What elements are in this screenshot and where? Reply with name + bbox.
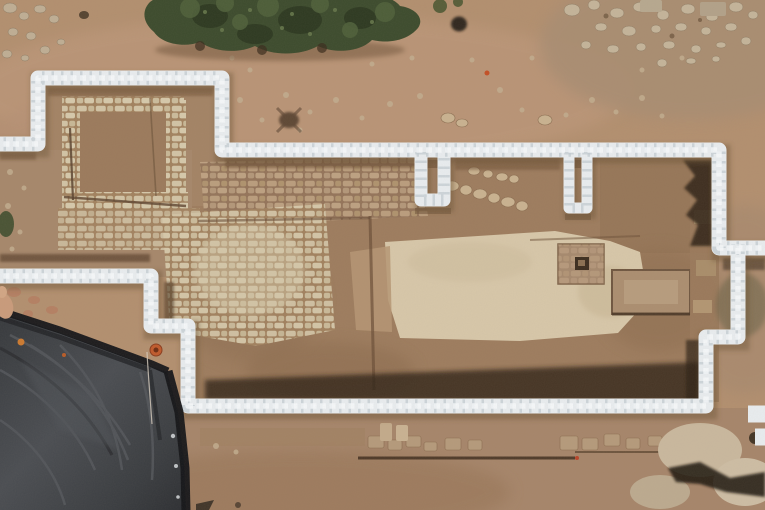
excavation-aerial-photo (0, 0, 765, 510)
aerial-photo-viewport (0, 0, 765, 510)
grain-overlay (0, 0, 765, 510)
